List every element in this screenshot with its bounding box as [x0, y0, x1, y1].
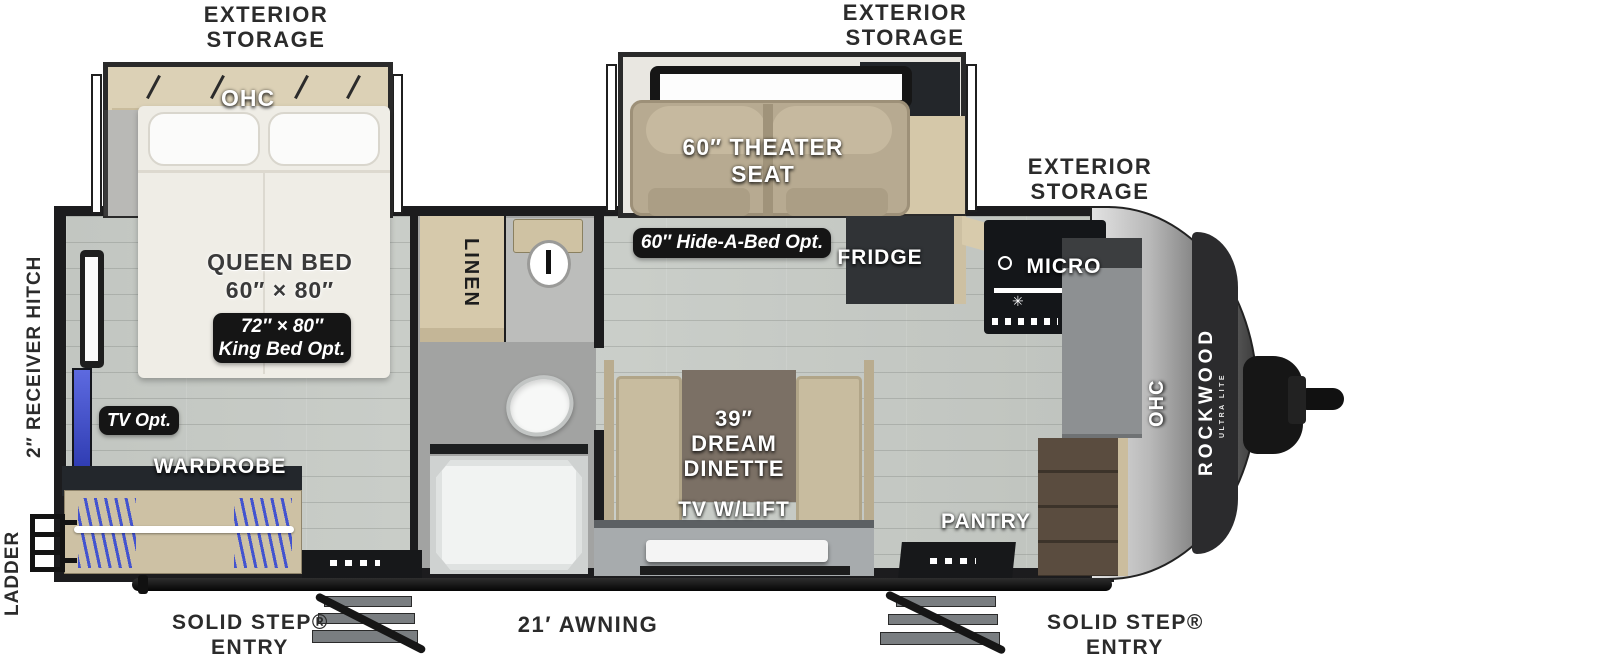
- label-line: SOLID STEP®: [172, 610, 328, 635]
- label-line: STORAGE: [802, 25, 1008, 50]
- dream-dinette-label: 39″ DREAM DINETTE: [654, 406, 814, 481]
- ladder-rung-icon: [30, 550, 65, 555]
- king-bed-option-badge: 72″ × 80″ King Bed Opt.: [213, 313, 351, 363]
- solid-step-label-right: SOLID STEP® ENTRY: [1047, 610, 1203, 656]
- label-line: 60″ × 80″: [195, 276, 365, 304]
- entry-landing-left-treads: [330, 560, 380, 566]
- hanging-clothes-left: [78, 498, 136, 568]
- ladder-rung-icon: [30, 514, 65, 519]
- bedroom-nightstand: [104, 110, 142, 216]
- label-line: DREAM: [654, 431, 814, 456]
- micro-label: MICRO: [1014, 255, 1114, 279]
- tv-lift-base: [640, 566, 850, 575]
- floorplan-canvas: ✳ EXTERIOR STORAGE EXTERIOR STORAGE EXTE…: [0, 0, 1600, 656]
- theater-slide-flange-left: [606, 64, 617, 212]
- pantry-cabinet: [1038, 438, 1124, 576]
- receiver-hitch-label: 2″ RECEIVER HITCH: [22, 252, 58, 462]
- dinette-side-panel-left: [604, 360, 614, 545]
- theater-window-glass: [660, 74, 902, 100]
- theater-ottoman-right: [786, 188, 888, 216]
- label-line: EXTERIOR: [161, 2, 371, 27]
- exterior-storage-label-mid: EXTERIOR STORAGE: [802, 0, 1008, 50]
- rear-window-glass: [85, 257, 98, 361]
- ladder-icon: [30, 514, 35, 572]
- label-line: EXTERIOR: [985, 154, 1195, 179]
- awning-label: 21′ AWNING: [495, 612, 681, 637]
- bed-fold-line: [138, 170, 390, 173]
- hide-a-bed-option-badge: 60″ Hide-A-Bed Opt.: [633, 228, 831, 258]
- hitch-coupler: [1288, 376, 1306, 424]
- exterior-storage-label-rear: EXTERIOR STORAGE: [161, 2, 371, 52]
- bedroom-slide-flange-left: [91, 74, 102, 214]
- burner-icon: [998, 256, 1012, 270]
- label-line: STORAGE: [985, 179, 1195, 204]
- label-line: ENTRY: [1047, 635, 1203, 656]
- ohc-bedroom-label: OHC: [208, 85, 288, 112]
- toilet-flush-icon: [546, 250, 551, 274]
- linen-label: LINEN: [448, 228, 482, 318]
- brand-name: ROCKWOOD: [1196, 310, 1220, 492]
- tv-option-badge: TV Opt.: [99, 406, 179, 435]
- bath-wall-upper: [594, 206, 604, 348]
- pillow-right: [268, 112, 380, 166]
- hanging-clothes-right: [234, 498, 292, 568]
- ladder-mount-icon: [63, 520, 77, 525]
- pantry-side-panel: [1118, 438, 1128, 576]
- label-line: 39″: [654, 406, 814, 431]
- exterior-storage-label-front: EXTERIOR STORAGE: [985, 154, 1195, 204]
- pillow-left: [148, 112, 260, 166]
- theater-ottoman-left: [648, 188, 750, 216]
- brand-subname: ULTRA LITE: [1219, 364, 1231, 446]
- bedroom-slide-flange-right: [392, 74, 403, 214]
- ladder-label: LADDER: [0, 494, 22, 652]
- label-line: 60″ THEATER: [663, 134, 863, 161]
- wardrobe-label: WARDROBE: [150, 455, 290, 479]
- fridge-label: FRIDGE: [824, 246, 936, 270]
- ladder-rung-icon: [30, 532, 65, 537]
- entry-landing-right-treads: [930, 558, 976, 564]
- label-line: ENTRY: [172, 635, 328, 656]
- snowflake-icon: ✳: [1012, 294, 1024, 308]
- badge-line: 72″ × 80″: [241, 315, 323, 338]
- pantry-label: PANTRY: [926, 510, 1046, 534]
- ohc-front-label: OHC: [1146, 372, 1176, 434]
- ladder-rung-icon: [30, 567, 65, 572]
- queen-bed-label: QUEEN BED 60″ × 80″: [195, 248, 365, 304]
- awning-rail: [132, 578, 1112, 591]
- badge-line: King Bed Opt.: [219, 338, 346, 361]
- shower-door-track: [430, 444, 588, 454]
- label-line: STORAGE: [161, 27, 371, 52]
- awning-rail-endcap: [138, 575, 148, 594]
- wardrobe-rod: [74, 526, 294, 533]
- theater-seat-label: 60″ THEATER SEAT: [663, 134, 863, 188]
- drawer-pulls-icon: [992, 318, 1058, 325]
- linen-drawer-edge: [420, 328, 504, 342]
- tv-w-lift-label: TV W/LIFT: [654, 498, 814, 522]
- shower-basin: [436, 460, 582, 570]
- theater-slide-flange-right: [966, 64, 977, 212]
- lift-tv: [646, 540, 828, 562]
- label-line: SEAT: [663, 161, 863, 188]
- label-line: QUEEN BED: [195, 248, 365, 276]
- label-line: EXTERIOR: [802, 0, 1008, 25]
- label-line: DINETTE: [654, 456, 814, 481]
- label-line: SOLID STEP®: [1047, 610, 1203, 635]
- ladder-mount-icon: [63, 558, 77, 563]
- solid-step-label-left: SOLID STEP® ENTRY: [172, 610, 328, 656]
- dinette-side-panel-right: [864, 360, 874, 545]
